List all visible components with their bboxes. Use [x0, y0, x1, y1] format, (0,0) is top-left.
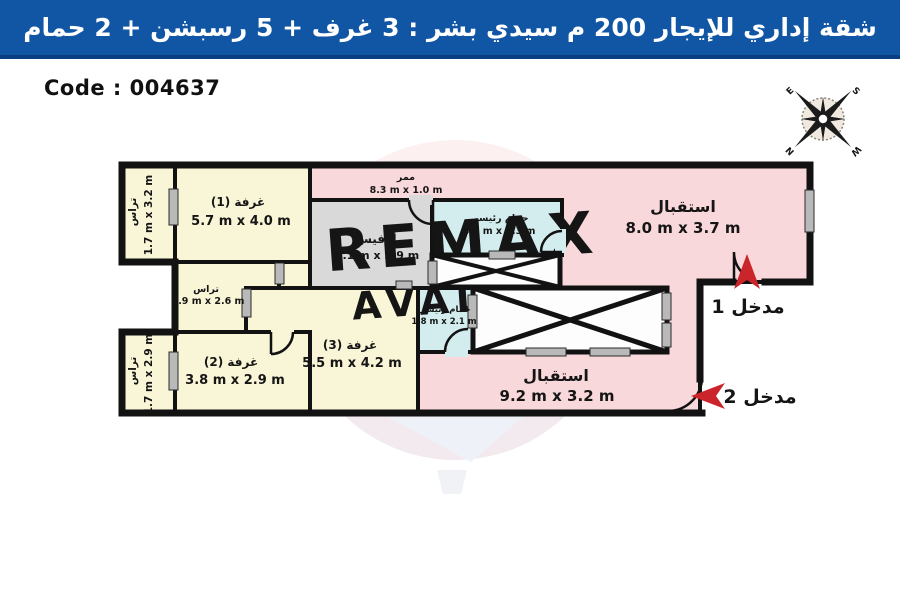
compass-n: N	[784, 144, 796, 156]
bath1-dims: 4.0 m x 1.3 m	[463, 226, 536, 237]
room1-name: غرفة (1)	[211, 195, 265, 209]
reception1-name: استقبال	[650, 197, 716, 216]
terrace-bottom-dims: 1.7 m x 2.9 m	[143, 334, 155, 415]
room3-dims: 5.5 m x 4.2 m	[302, 356, 402, 371]
compass-w: W	[848, 143, 862, 157]
bath2-dims: 1.8 m x 2.1 m	[411, 317, 476, 327]
corridor-name: ممر	[396, 172, 415, 183]
floor-plan: REMAX AVALON	[0, 0, 900, 599]
terrace-top-name: تراس	[127, 198, 139, 227]
office-name: أوفيس	[355, 231, 396, 247]
room1-dims: 5.7 m x 4.0 m	[191, 214, 291, 229]
terrace-bottom-name: تراس	[127, 357, 139, 386]
terrace-mid-name: تراس	[193, 284, 219, 295]
bath1-name: حمام رئيسي	[469, 213, 528, 224]
reception1-dims: 8.0 m x 3.7 m	[626, 219, 741, 237]
reception2-dims: 9.2 m x 3.2 m	[500, 387, 615, 405]
floor-plan-page: شقة إداري للإيجار 200 م سيدي بشر : 3 غرف…	[0, 0, 900, 599]
balloon-basket	[437, 470, 467, 494]
bath2-name: حمام رئيسي	[417, 305, 470, 315]
compass-icon: E S N W	[784, 86, 862, 158]
room2-dims: 3.8 m x 2.9 m	[185, 373, 285, 388]
compass-e: E	[785, 86, 796, 97]
entrance-2-label: مدخل 2	[723, 386, 796, 408]
office-dims: 4.1 m x 2.9 m	[335, 249, 419, 262]
entrance-1-label: مدخل 1	[711, 296, 784, 318]
room2-name: غرفة (2)	[204, 355, 258, 369]
corridor-dims: 8.3 m x 1.0 m	[370, 185, 443, 196]
reception2-name: استقبال	[523, 366, 589, 385]
compass-s: S	[850, 86, 862, 98]
terrace-top-dims: 1.7 m x 3.2 m	[143, 175, 155, 256]
terrace-mid-dims: 2.9 m x 2.6 m	[172, 296, 245, 307]
room3-name: غرفة (3)	[323, 338, 377, 352]
